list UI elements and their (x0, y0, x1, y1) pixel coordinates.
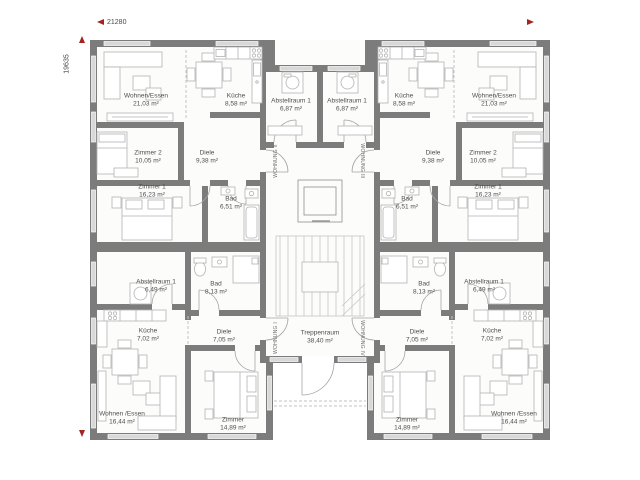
room-label-wohnen-essen-tl: Wohnen/Essen21,03 m² (124, 93, 168, 110)
room-label-diele-br: Diele7,05 m² (406, 329, 428, 346)
room-label-bad-br: Bad8,13 m² (413, 281, 435, 298)
room-label-diele-tl: Diele9,38 m² (196, 150, 218, 167)
room-label-wohnen-essen-tr: Wohnen/Essen21,03 m² (472, 93, 516, 110)
room-label-abstellraum-tl: Abstellraum 16,87 m² (271, 98, 311, 115)
room-label-kueche-br: Küche7,02 m² (481, 328, 503, 345)
room-label-bad-tr: Bad6,51 m² (396, 196, 418, 213)
unit-label-wohnung-3: WOHNUNG III (359, 143, 365, 178)
room-label-bad-tl: Bad6,51 m² (220, 196, 242, 213)
room-label-wohnen-essen-br: Wohnen /Essen16,44 m² (491, 411, 537, 428)
room-label-bad-bl: Bad8,13 m² (205, 281, 227, 298)
unit-label-wohnung-1: WOHNUNG I (273, 322, 279, 354)
room-label-zimmer-bl: Zimmer14,89 m² (220, 417, 246, 434)
room-label-zimmer1-tr: Zimmer 116,23 m² (474, 184, 501, 201)
room-label-kueche-bl: Küche7,02 m² (137, 328, 159, 345)
entry-door-opening (302, 356, 334, 363)
dim-arrow-right (527, 19, 534, 25)
room-label-abstellraum-br: Abstellraum 16,49 m² (464, 279, 504, 296)
room-label-kueche-tr: Küche8,58 m² (393, 93, 415, 110)
dim-width-label: 21280 (107, 19, 126, 26)
room-label-treppenraum: Treppenraum38,40 m² (301, 330, 340, 347)
dim-arrow-up (79, 36, 85, 43)
unit-label-wohnung-2: WOHNUNG II (273, 144, 279, 178)
unit-label-wohnung-4: WOHNUNG IV (359, 320, 365, 356)
room-label-zimmer2-tl: Zimmer 210,05 m² (134, 150, 161, 167)
room-label-wohnen-essen-bl: Wohnen /Essen16,44 m² (99, 411, 145, 428)
elevator (298, 180, 342, 222)
room-label-kueche-tl: Küche8,58 m² (225, 93, 247, 110)
room-label-diele-bl: Diele7,05 m² (213, 329, 235, 346)
dim-arrow-left (97, 19, 104, 25)
room-label-zimmer-br: Zimmer14,89 m² (394, 417, 420, 434)
dim-arrow-down (79, 430, 85, 437)
floorplan-canvas: 21280 19635 WOHNUNG II WOHNUNG III WOHNU… (0, 0, 640, 480)
dim-height-label: 19635 (64, 54, 71, 73)
room-label-zimmer1-tl: Zimmer 116,23 m² (138, 184, 165, 201)
floorplan-drawing (0, 0, 640, 480)
room-label-zimmer2-tr: Zimmer 210,05 m² (469, 150, 496, 167)
room-label-abstellraum-bl: Abstellraum 16,49 m² (136, 279, 176, 296)
room-label-abstellraum-tr: Abstellraum 16,87 m² (327, 98, 367, 115)
room-label-diele-tr: Diele9,38 m² (422, 150, 444, 167)
